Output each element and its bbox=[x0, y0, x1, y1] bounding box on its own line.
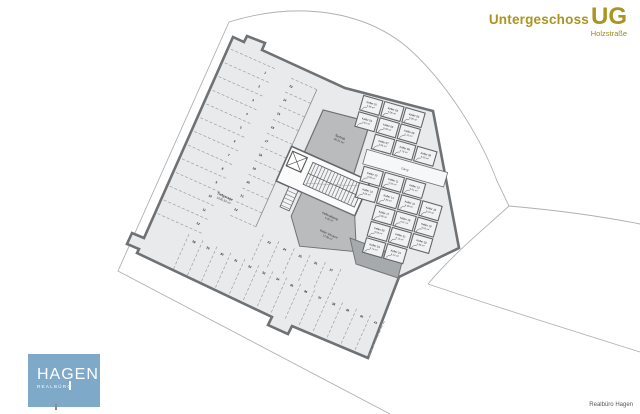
title-block: Untergeschoss UG Holzstraße bbox=[489, 5, 627, 38]
logo-g-tail bbox=[69, 381, 71, 390]
plan-credit: Realbüro Hagen bbox=[589, 402, 633, 408]
page-title: Untergeschoss bbox=[489, 13, 589, 30]
company-logo: HAGEN REALBÜRO bbox=[28, 354, 100, 407]
page-subtitle: Holzstraße bbox=[489, 30, 627, 38]
floor-plan-svg: 1234567891011121314151617181920212223242… bbox=[0, 0, 640, 414]
fold-mark bbox=[55, 404, 57, 410]
boundary-right-line-1 bbox=[509, 206, 640, 224]
boundary-bottom-right-line bbox=[428, 284, 640, 352]
page-title-abbr: UG bbox=[591, 5, 627, 29]
page: 1234567891011121314151617181920212223242… bbox=[0, 0, 640, 414]
